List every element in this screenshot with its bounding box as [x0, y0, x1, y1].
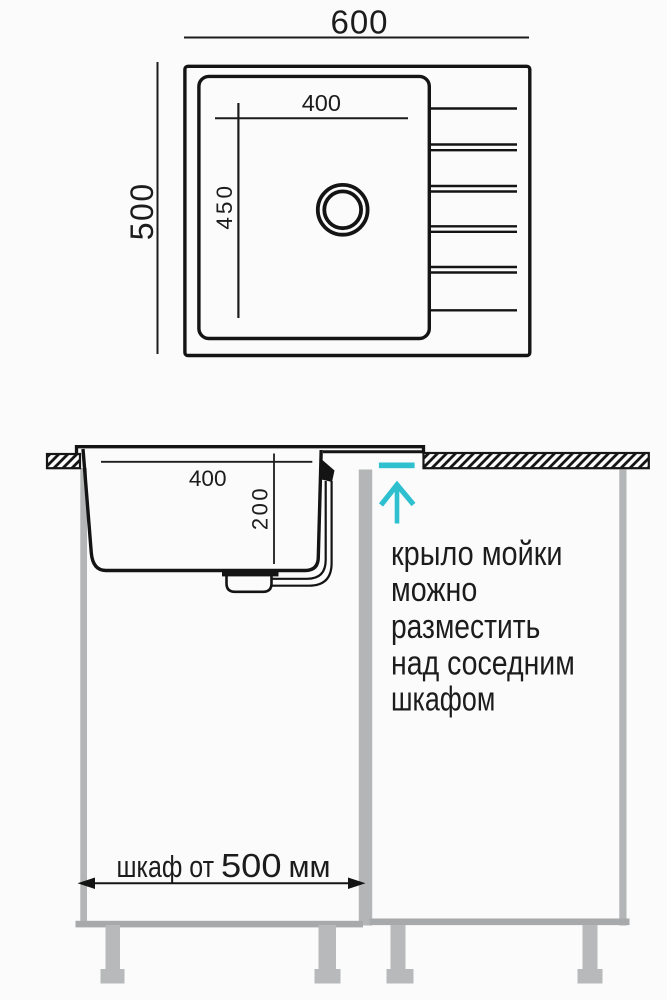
svg-text:можно: можно: [391, 571, 477, 609]
svg-text:разместить: разместить: [391, 608, 540, 646]
svg-text:мм: мм: [289, 849, 331, 884]
svg-text:шкаф от: шкаф от: [117, 849, 215, 884]
svg-text:600: 600: [330, 4, 388, 41]
svg-text:шкафом: шкафом: [391, 681, 495, 719]
svg-text:крыло мойки: крыло мойки: [391, 535, 563, 573]
svg-text:над соседним: над соседним: [391, 645, 575, 683]
svg-text:400: 400: [302, 90, 341, 116]
svg-text:200: 200: [247, 486, 272, 530]
svg-text:500: 500: [221, 847, 282, 884]
svg-text:500: 500: [124, 182, 160, 240]
svg-text:400: 400: [189, 466, 227, 491]
svg-text:450: 450: [212, 183, 237, 230]
